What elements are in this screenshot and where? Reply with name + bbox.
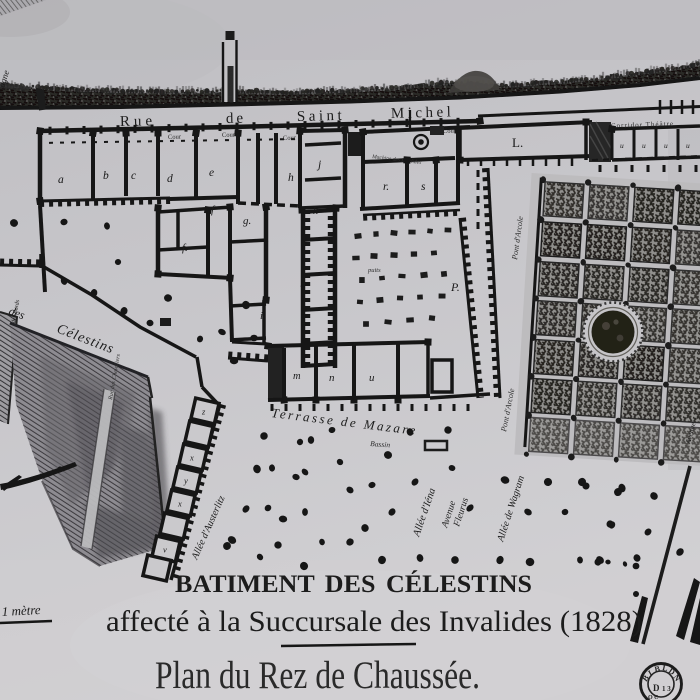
svg-text:Cour: Cour <box>222 132 236 139</box>
svg-text:g.: g. <box>243 215 251 227</box>
svg-text:1 mètre: 1 mètre <box>1 602 41 619</box>
svg-text:d: d <box>167 173 173 185</box>
svg-text:f.: f. <box>182 242 188 254</box>
svg-text:R. Castillane: R. Castillane <box>229 69 235 99</box>
svg-text:u: u <box>369 372 375 384</box>
svg-text:BATIMENT DES CÉLESTINS: BATIMENT DES CÉLESTINS <box>175 569 532 598</box>
svg-text:r.: r. <box>383 181 389 193</box>
svg-text:x: x <box>189 453 194 463</box>
svg-text:u: u <box>664 141 668 150</box>
svg-text:c: c <box>131 170 136 182</box>
svg-text:u: u <box>686 141 690 150</box>
svg-text:e: e <box>209 167 214 179</box>
svg-text:Plan du Rez de Chaussée.: Plan du Rez de Chaussée. <box>155 654 480 697</box>
svg-text:D: D <box>653 683 660 693</box>
svg-text:Bassin: Bassin <box>370 439 391 449</box>
svg-text:h: h <box>288 172 294 184</box>
svg-text:z: z <box>201 407 206 417</box>
svg-text:1 3: 1 3 <box>662 685 671 693</box>
svg-text:O C: O C <box>648 695 659 700</box>
svg-text:Cour: Cour <box>283 135 297 142</box>
svg-text:a: a <box>58 174 64 186</box>
svg-text:m: m <box>293 371 301 382</box>
svg-text:v: v <box>163 545 167 555</box>
svg-text:n: n <box>329 372 335 384</box>
svg-text:b: b <box>103 170 109 182</box>
svg-text:L.: L. <box>512 135 523 150</box>
svg-text:Cour: Cour <box>168 134 182 141</box>
svg-text:u: u <box>620 141 624 150</box>
svg-text:u: u <box>642 141 646 150</box>
svg-text:s: s <box>421 181 426 193</box>
svg-text:puits: puits <box>367 267 381 274</box>
svg-text:y: y <box>183 476 188 486</box>
svg-text:affecté à la Succursale des: affecté à la Succursale des Invalides (1… <box>106 605 642 638</box>
svg-text:P.: P. <box>450 280 460 294</box>
svg-text:x: x <box>177 499 182 509</box>
